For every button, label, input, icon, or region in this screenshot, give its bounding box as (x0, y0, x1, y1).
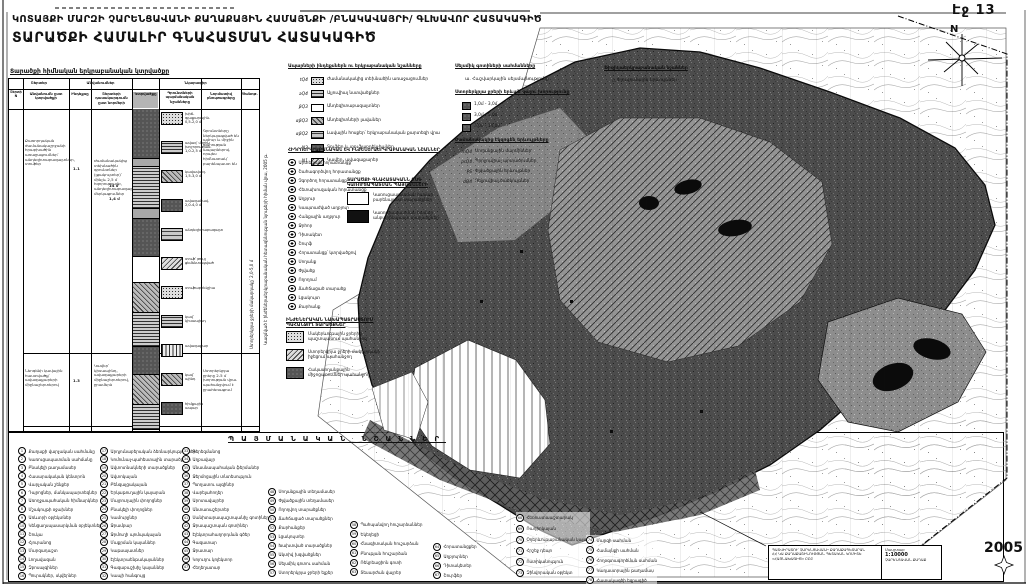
legend-item: 6Դպրոցներ, մանկապարտեզներ (18, 488, 102, 496)
legend-number: 35 (182, 464, 190, 472)
legend-label: Կապի հանգույց (111, 573, 146, 578)
legend-item: 69Ռադիոկայան (516, 523, 590, 534)
map-title: ՏԱՐԱԾՔԻ ՀԱՄԱԼԻՐ ԳՆԱՀԱՏՄԱՆ ՀԱՏԱԿԱԳԻԾ (12, 30, 376, 46)
strat-cell (133, 257, 159, 283)
soil-caption: տուֆաբրեկչիա (185, 286, 215, 313)
exogenic-item: prQ4 Պրոլյուվիալ արտածումներ (458, 157, 536, 167)
legend-number: 9 (18, 514, 26, 522)
soil-thumbnail: տուֆաբրեկչիա (161, 284, 201, 313)
legend-item: 50Ողողվող տարածքներ (268, 505, 335, 514)
table-col-header: Անվանումն ըստ կտրվածքի (24, 92, 68, 101)
legend-item: 35Անասնապահական ֆերմաներ (182, 464, 269, 472)
assessment-swatch (347, 210, 369, 223)
soil-swatch (161, 170, 183, 183)
city-name: ՉԱՐԵՆՑԱՎԱՆ ՔԱՂԱՔ (885, 558, 939, 562)
legend-number: 77 (586, 566, 594, 574)
geo-swatch (311, 131, 324, 139)
legend-item: 65Աղբյուրներ (433, 552, 477, 562)
soil-thumbnail: ավազաքար (161, 342, 201, 371)
legend-label: Կառուցապատման սահմանը (29, 457, 93, 462)
legend-number: 31 (100, 563, 108, 571)
assessment-item: Կառուցապատման համարանբարենպաստ տարածքներ (347, 210, 463, 223)
soil-caption: անդեզիտաբազալտ (185, 228, 223, 255)
hydro-label: Արտեզյան հորատանցք (299, 160, 352, 165)
geo-legend-item: βQ3 Անդեզիտաբազալտներ (294, 101, 440, 115)
layer-index: 1.1 (73, 167, 80, 172)
legend-label: Արոտավայրեր (193, 498, 225, 503)
legend-label: Մշակույթի օջախներ (29, 507, 74, 512)
geo-label: Անդեզիտների լավաներ (327, 119, 381, 124)
legend-item: 38Վարելահողեր (182, 488, 269, 496)
legend-item: 60Հնագիտական հուշարձան (350, 539, 422, 549)
groundwater-legend: 1,0մ - 3,0մ 3,0մ - 5,0մ 5,0մ - 10,0մ (462, 100, 500, 133)
legend-item: 62Ռեկրեացիոն գոտի (350, 558, 422, 568)
legend-item: 54Խախտված տարածքներ (268, 541, 335, 550)
legend-label: Գազատար (193, 540, 217, 545)
legend-item: 36Ջերմոցային տնտեսություն (182, 472, 269, 480)
hydro-label: Սողանք (299, 259, 317, 264)
legend-label: Հատակագծի եզրագիծ (597, 578, 647, 583)
legend-item: 76Հողօգտագործման սահման (586, 555, 657, 565)
seismic-item: ա. Հաշվարկային սեյսմայնությունը (465, 77, 549, 82)
well-icon (288, 240, 296, 248)
hydro-label: Շուրֆ (299, 241, 313, 246)
soil-swatch (161, 373, 183, 386)
soil-caption: կավ՝ պինդ (185, 373, 201, 400)
hydro-label: Ճահճացած տարածք (299, 286, 347, 291)
cond-col-8: 74Մարզի սահման75Համայնքի սահման76Հողօգտա… (586, 535, 657, 585)
well-icon (288, 249, 296, 257)
legend-label: Փլվածքային տեղամասեր (279, 498, 334, 503)
legend-number: 44 (182, 538, 190, 546)
geo-swatch (311, 104, 324, 112)
layer-description: Ժամանակակից տեխնածին գրունտներ (լցակույտ… (94, 159, 130, 197)
legend-number: 71 (516, 547, 524, 555)
legend-number: 36 (182, 472, 190, 480)
legend-label: Պտղատու այգիներ (193, 482, 235, 487)
legend-item: 75Համայնքի սահման (586, 545, 657, 555)
legend-number: 51 (268, 515, 276, 523)
soil-thumbnail: կավ՝ կիսապինդ (161, 313, 201, 342)
well-icon (288, 168, 296, 176)
geo-legend-item: aQ4 Ալյուվիալ նստվածքներ (294, 88, 440, 102)
cond-col-7: 68Հեռուստաաշտարակ69Ռադիոկայան70Օդերևութա… (516, 512, 590, 578)
legend-number: 37 (182, 480, 190, 488)
soil-thumbnail: խիճ-գլաքարային. 0,5-2,0 մ (161, 110, 201, 139)
layer-name: Քառորդական ժամանակաշրջանի հրաբխածին առաջ… (25, 139, 67, 167)
legend-number: 12 (18, 538, 26, 546)
legend-label: Քարհանքեր (279, 525, 306, 530)
hydro-heading: ՀԻԴՐՈԵՐԿՐԱԲԱՆԱԿԱՆ ԵՎ ԻՆԺԵՆԵՐԱԵՐԿՐԱԲԱՆԱԿԱ… (288, 148, 488, 153)
legend-number: 47 (182, 563, 190, 571)
legend-label: Մաքրման կայաններ (111, 540, 156, 545)
legend-label: Հասարակական կենտրոն (29, 474, 86, 479)
soil-caption: ավազակավ. 2,0-4,0 մ (185, 199, 209, 226)
legend-number: 55 (268, 551, 276, 559)
legend-item: 11Շուկա (18, 530, 102, 538)
legend-label: Հողօգտագործման սահման (597, 558, 658, 563)
engineering-item: Մակերևութային ջրերիցպաշտպանում պահանջող (286, 331, 398, 343)
legend-number: 42 (182, 522, 190, 530)
well-icon (288, 213, 296, 221)
legend-number: 78 (586, 576, 594, 584)
soil-thumbnail: տուֆ՝ թույլ ցեմենտացված (161, 255, 201, 284)
legend-number: 8 (18, 505, 26, 513)
geo-index: aQ4 (294, 92, 308, 97)
engineering-label: Հակասողանքայինմիջոցառումներ պահանջող (308, 367, 398, 379)
soil-thumbnail: ավազ՝ միջին խոշորության. 1,0-2,5 մ (161, 139, 201, 168)
strat-cell (133, 109, 159, 159)
table-col-header: Շերտի N (9, 91, 23, 98)
geo-label: Լավային հոսքեր՝ երկրաբանական քարտեզի վրա (327, 132, 440, 137)
legend-number: 75 (586, 546, 594, 554)
legend-label: Անասնապահական ֆերմաներ (193, 465, 260, 470)
legend-item: 56Սեյսմիկ գոտու սահման (268, 559, 335, 568)
year-label: 2005 (984, 540, 1023, 556)
legend-item: 13Մարզադաշտ (18, 547, 102, 555)
groundwater-label: 5,0մ - 10,0մ (474, 125, 500, 130)
title-block-left: ՊԱՏՎԻՐԱՏՈՒ՝ ՉԱՐԵՆՑԱՎԱՆԻ ՔԱՂԱՔԱՊԵՏԱՐԱՆ ՀՀ… (772, 548, 878, 561)
table-col-header: Ծանոթ. (242, 92, 258, 96)
legend-number: 43 (182, 530, 190, 538)
geo-label: Ալյուվիալ նստվածքներ (327, 92, 380, 97)
geo-swatch (311, 77, 324, 85)
soil-caption: կավ՝ կիսապինդ (185, 315, 206, 342)
legend-item: 12Հյուրանոց (18, 538, 102, 546)
legend-label: Ավտոտնակների տարածքներ (111, 465, 176, 470)
legend-number: 16 (18, 572, 26, 580)
assessment-swatch (347, 192, 369, 205)
soil-thumbnail: կավավազ. 1,5-3,0 մ (161, 168, 201, 197)
well-icon (288, 159, 296, 167)
legend-number: 34 (182, 455, 190, 463)
legend-label: Լողավազան (29, 557, 56, 562)
table-col-header: Կտրվածքը (133, 92, 158, 108)
legend-label: Քաղաքի վարչական սահմանը (29, 449, 95, 454)
strat-cell (133, 347, 159, 375)
legend-number: 11 (18, 530, 26, 538)
hydro-label: Կապտաժված աղբյուր (299, 205, 349, 210)
legend-label: Լցակույտեր (279, 534, 305, 539)
well-icon (288, 285, 296, 293)
assessment-label: Կառուցապատման համարանբարենպաստ տարածքներ (373, 210, 463, 223)
legend-number: 7 (18, 497, 26, 505)
legend-number: 40 (182, 505, 190, 513)
legend-item: 34Աղբավայր (182, 455, 269, 463)
engineering-label: Ստորերկրյա ջրերի մակարդակիիջեցում պահանջ… (308, 349, 398, 361)
legend-item: 14Լողավազան (18, 555, 102, 563)
groundwater-swatch (462, 124, 471, 132)
table-rotated-note: Ստորերկրյա ջրերի մակարդակը՝ 2,0-5,0 մ (249, 260, 254, 349)
geo-legend-item: αβQ3 Անդեզիտների լավաներ (294, 115, 440, 129)
strat-cell (133, 405, 159, 430)
hydro-label: Չգործող հորատանցք (299, 178, 347, 183)
legend-number: 25 (100, 514, 108, 522)
page-number: Էջ 13 (952, 3, 996, 18)
table-col-header: Գրունտների պայմանական նշանները (160, 91, 200, 104)
legend-item: 73Զինվորական օբյեկտ (516, 567, 590, 578)
geo-swatch (311, 90, 324, 98)
legend-number: 14 (18, 555, 26, 563)
legend-item: 32Կապի հանգույց (100, 571, 196, 579)
legend-item: 49Փլվածքային տեղամասեր (268, 496, 335, 505)
strat-cell (133, 283, 159, 313)
exogenic-index: prQ4 (458, 160, 472, 165)
legend-number: 21 (100, 480, 108, 488)
engineering-label: Մակերևութային ջրերիցպաշտպանում պահանջող (308, 331, 398, 343)
legend-label: Հրշեջ դեպո (527, 548, 553, 553)
legend-number: 26 (100, 522, 108, 530)
legend-item: 55Ակտիվ խզվածքներ (268, 550, 335, 559)
engineering-block: ԻՆԺԵՆԵՐԱԿԱՆ ՆԱԽԱՊԱՏՐԱՍՏՈՒՄ ՊԱՀԱՆՋՈՂ ՏԱՐԱ… (286, 318, 398, 385)
soil-caption: հիմքային ապար (185, 402, 203, 429)
legend-number: 6 (18, 489, 26, 497)
legend-label: Հեռուստաաշտարակ (527, 515, 573, 520)
legend-item: 63Տեսարժան վայրեր (350, 568, 422, 578)
legend-number: 45 (182, 547, 190, 555)
legend-number: 15 (18, 563, 26, 571)
legend-number: 48 (268, 488, 276, 496)
legend-label: Առողջապահական հիմնարկներ (29, 498, 99, 503)
strat-cell (133, 167, 159, 209)
legend-number: 68 (516, 514, 524, 522)
legend-label: Սողանքային տեղամասեր (279, 489, 336, 494)
legend-label: Ստորերկրյա ջրերի ելքեր (279, 570, 333, 575)
physgeo-label: Փլուզումային երևույթներ (617, 78, 677, 83)
legend-label: Դպրոցներ, մանկապարտեզներ (29, 490, 98, 495)
legend-label: Կադաստրային թաղամաս (597, 568, 654, 573)
groundwater-heading: Ստորերկրյա ջրերի երևան գալու խորությունը (455, 90, 569, 95)
soil-caption: ավազ՝ միջին խոշորության. 1,0-2,5 մ (185, 141, 212, 168)
legend-label: Կոմունալ-պահեստային տարածքներ (111, 457, 192, 462)
well-icon (288, 186, 296, 194)
legend-label: Խախտված տարածքներ (279, 543, 333, 548)
legend-item: 4Հասարակական կենտրոն (18, 472, 102, 480)
strat-cell (133, 375, 159, 405)
legend-label: Ակտիվ խզվածքներ (279, 552, 321, 557)
soil-caption: տուֆ՝ թույլ ցեմենտացված (185, 257, 214, 284)
legend-item: 58Պահպանվող հուշարձաններ (350, 520, 422, 530)
geo-index: βQ3 (294, 105, 308, 110)
exogenic-label: Դելյուվիալ ծածկույթներ (475, 180, 529, 185)
legend-item: 45Ջրատար (182, 547, 269, 555)
legend-number: 27 (100, 530, 108, 538)
geo-label: Ժամանակակից տեխնածին առաջացումներ (327, 78, 428, 83)
cond-col-1: 1Քաղաքի վարչական սահմանը2Կառուցապատման ս… (18, 447, 102, 580)
legend-label: Շուրֆեր (444, 573, 463, 578)
table-col-header: Շերտերի դասակարգումն ըստ նորմերի (92, 92, 131, 105)
legend-number: 63 (350, 568, 358, 576)
legend-number: 56 (268, 560, 276, 568)
legend-label: Եկեղեցի (361, 532, 380, 537)
engineering-swatch (286, 349, 304, 361)
assessment-block: ՏԱՐԱԾՔԻ ԳՆԱՀԱՏԱԿԱՆՆ ԸՍՏ ԿԱՌՈՒՑԱՊԱՏՄԱՆ ՊԱ… (347, 178, 463, 228)
legend-label: Առևտրի օբյեկտներ (29, 515, 72, 520)
hydro-item: Արտեզյան հորատանցք (288, 158, 367, 167)
legend-number: 29 (100, 547, 108, 555)
legend-item: 7Առողջապահական հիմնարկներ (18, 497, 102, 505)
legend-number: 61 (350, 549, 358, 557)
exogenic-legend: mQ4 Սողանքային մարմիններ prQ4 Պրոլյուվիա… (458, 147, 536, 187)
legend-label: Հնագիտական հուշարձան (361, 541, 419, 546)
legend-label: Տեսարժան վայրեր (361, 570, 402, 575)
assessment-item: Կառուցապատման համարբարենպաստ տարածքներ (347, 192, 463, 205)
legend-number: 2 (18, 455, 26, 463)
soil-thumbnail: անդեզիտաբազալտ (161, 226, 201, 255)
legend-item: 37Պտղատու այգիներ (182, 480, 269, 488)
legend-number: 22 (100, 489, 108, 497)
table-col-header: Նորմատիվ բնութագրերը (202, 92, 240, 101)
soil-caption: ավազաքար (185, 344, 208, 371)
hydro-item: Փլվածք (288, 266, 367, 275)
hydro-label: Ողողում (299, 277, 317, 282)
geo-legend: tQ4 Ժամանակակից տեխնածին առաջացումներ aQ… (294, 74, 440, 169)
legend-number: 72 (516, 558, 524, 566)
legend-number: 18 (100, 455, 108, 463)
side-note: Կազմված է ինժեներաերկրաբանական հետազննու… (263, 153, 268, 345)
cond-col-4: 48Սողանքային տեղամասեր49Փլվածքային տեղամ… (268, 487, 335, 577)
legend-item: 61Բնության հուշարձան (350, 549, 422, 559)
hydro-item: Ողողում (288, 275, 367, 284)
legend-label: Ջերմոցային տնտեսություն (193, 474, 252, 479)
engineering-swatch (286, 331, 304, 343)
legend-number: 33 (182, 447, 190, 455)
soil-swatch (161, 402, 183, 415)
geo-legend-item: tQ4 Ժամանակակից տեխնածին առաջացումներ (294, 74, 440, 88)
legend-label: Հյուրանոց (29, 540, 52, 545)
hydro-item: Դիտակետ (288, 230, 367, 239)
legend-number: 64 (433, 543, 441, 551)
legend-number: 52 (268, 524, 276, 532)
legend-item: 15Զբոսայգիներ (18, 563, 102, 571)
hydro-label: Աղբյուր (299, 196, 316, 201)
legend-number: 73 (516, 569, 524, 577)
groundwater-item: 3,0մ - 5,0մ (462, 111, 500, 122)
soil-swatch (161, 257, 183, 270)
legend-label: Ոստիկանություն (527, 559, 564, 564)
legend-number: 3 (18, 464, 26, 472)
well-icon (288, 177, 296, 185)
geo-index: tQ4 (294, 78, 308, 83)
assessment-label: Կառուցապատման համարբարենպաստ տարածքներ (373, 192, 463, 205)
legend-number: 41 (182, 514, 190, 522)
legend-label: Բնակելի թաղամասեր (29, 465, 77, 470)
legend-item: 41Սանիտարապաշտպանիչ գոտիներ (182, 513, 269, 521)
legend-label: Ջրամբար (111, 523, 133, 528)
legend-label: Էլեկտրահաղորդման գծեր (193, 532, 250, 537)
well-icon (288, 303, 296, 311)
legend-item: 67Շուրֆեր (433, 571, 477, 581)
cond-col-6: 64Հորատանցքեր65Աղբյուրներ66Դիտակետեր67Շո… (433, 542, 477, 580)
legend-number: 10 (18, 522, 26, 530)
legend-number: 54 (268, 542, 276, 550)
legend-number: 32 (100, 572, 108, 580)
legend-item: 43Էլեկտրահաղորդման գծեր (182, 530, 269, 538)
well-icon (288, 276, 296, 284)
legend-number: 46 (182, 555, 190, 563)
exogenic-item: PS Փլվածքային երևույթներ (458, 167, 536, 177)
strat-cell (133, 159, 159, 167)
table-col-header: Ինդեքսը (69, 92, 91, 96)
legend-item: 51Ճահճացած տարածքներ (268, 514, 335, 523)
table-group-header: Շերտեր (9, 81, 69, 85)
legend-label: Ճահճացած տարածքներ (279, 516, 333, 521)
legend-number: 57 (268, 569, 276, 577)
legend-label: Հորատանցքեր (444, 544, 477, 549)
legend-number: 65 (433, 552, 441, 560)
strat-cell (133, 313, 159, 347)
legend-item: 2Կառուցապատման սահմանը (18, 455, 102, 463)
legend-label: Զինվորական օբյեկտ (527, 570, 573, 575)
exogenic-label: Պրոլյուվիալ արտածումներ (475, 160, 536, 165)
well-icon (288, 204, 296, 212)
strat-cell (133, 209, 159, 219)
legend-item: 64Հորատանցքեր (433, 542, 477, 552)
legend-number: 58 (350, 521, 358, 529)
groundwater-swatch (462, 113, 471, 121)
legend-label: Կաթսայատներ (111, 548, 144, 553)
geo-legend-heading: Ապարների ինդեքսներն ու երկրաբանական նշան… (288, 64, 422, 69)
table-caption: Տարածքի հիմնական երկրաբանական կտրվածքը (10, 68, 169, 75)
legend-number: 4 (18, 472, 26, 480)
legend-label: Ավտոկայան (111, 474, 138, 479)
groundwater-item: 5,0մ - 10,0մ (462, 122, 500, 133)
legend-number: 5 (18, 480, 26, 488)
hydro-label: Հանքային աղբյուր (299, 214, 341, 219)
hydro-item: Լցակույտ (288, 293, 367, 302)
exogenic-index: PS (458, 170, 472, 175)
layer-name: Նեոգենի կավային հաստվածք՝ ավազաքարերի մի… (25, 369, 67, 388)
strat-table: Շերտեր Անվանումներ Նկարագիր Շերտի N Անվա… (8, 78, 260, 432)
legend-number: 76 (586, 556, 594, 564)
physgeo-heading: Ֆիզիկաերկրաբանական նշաններ (604, 66, 688, 71)
legend-label: Մարզադաշտ (29, 548, 58, 553)
hydro-item: Սողանք (288, 257, 367, 266)
legend-number: 24 (100, 505, 108, 513)
legend-item: 47Հեղեղատար (182, 563, 269, 571)
compass-rosette-icon (995, 556, 1013, 574)
legend-item: 3Բնակելի թաղամասեր (18, 464, 102, 472)
legend-number: 70 (516, 536, 524, 544)
legend-label: Վարելահողեր (193, 490, 223, 495)
legend-item: 48Սողանքային տեղամասեր (268, 487, 335, 496)
legend-label: Երկաթուղային կայարան (111, 490, 166, 495)
legend-label: Գերեզմանոց (193, 449, 221, 454)
hydro-label: Լցակույտ (299, 295, 320, 300)
legend-number: 49 (268, 497, 276, 505)
legend-item: 46Կոյուղու կոլեկտոր (182, 555, 269, 563)
legend-number: 59 (350, 530, 358, 538)
legend-item: 16Պուրակներ, սկվերներ (18, 571, 102, 579)
legend-number: 30 (100, 555, 108, 563)
legend-label: Ջրմուղի պոմպակայան (111, 532, 162, 537)
legend-number: 50 (268, 506, 276, 514)
legend-number: 19 (100, 464, 108, 472)
geo-legend-item: αβQ2 Լավային հոսքեր՝ երկրաբանական քարտեզ… (294, 128, 440, 142)
legend-label: Ջրատար (193, 548, 213, 553)
hydro-label: Ջրհոր (299, 223, 313, 228)
table-group-header: Նկարագիր (132, 81, 259, 85)
legend-label: Զբոսայգիներ (29, 565, 58, 570)
engineering-item: Ստորերկրյա ջրերի մակարդակիիջեցում պահանջ… (286, 349, 398, 361)
legend-label: Մայրուղային փողոցներ (111, 498, 163, 503)
well-icon (288, 258, 296, 266)
legend-item: 78Հատակագծի եզրագիծ (586, 575, 657, 585)
legend-item: 52Քարհանքեր (268, 523, 335, 532)
geo-index: αβQ2 (294, 132, 308, 137)
legend-number: 13 (18, 547, 26, 555)
legend-label: Գազաբաշխիչ կայաններ (111, 565, 165, 570)
